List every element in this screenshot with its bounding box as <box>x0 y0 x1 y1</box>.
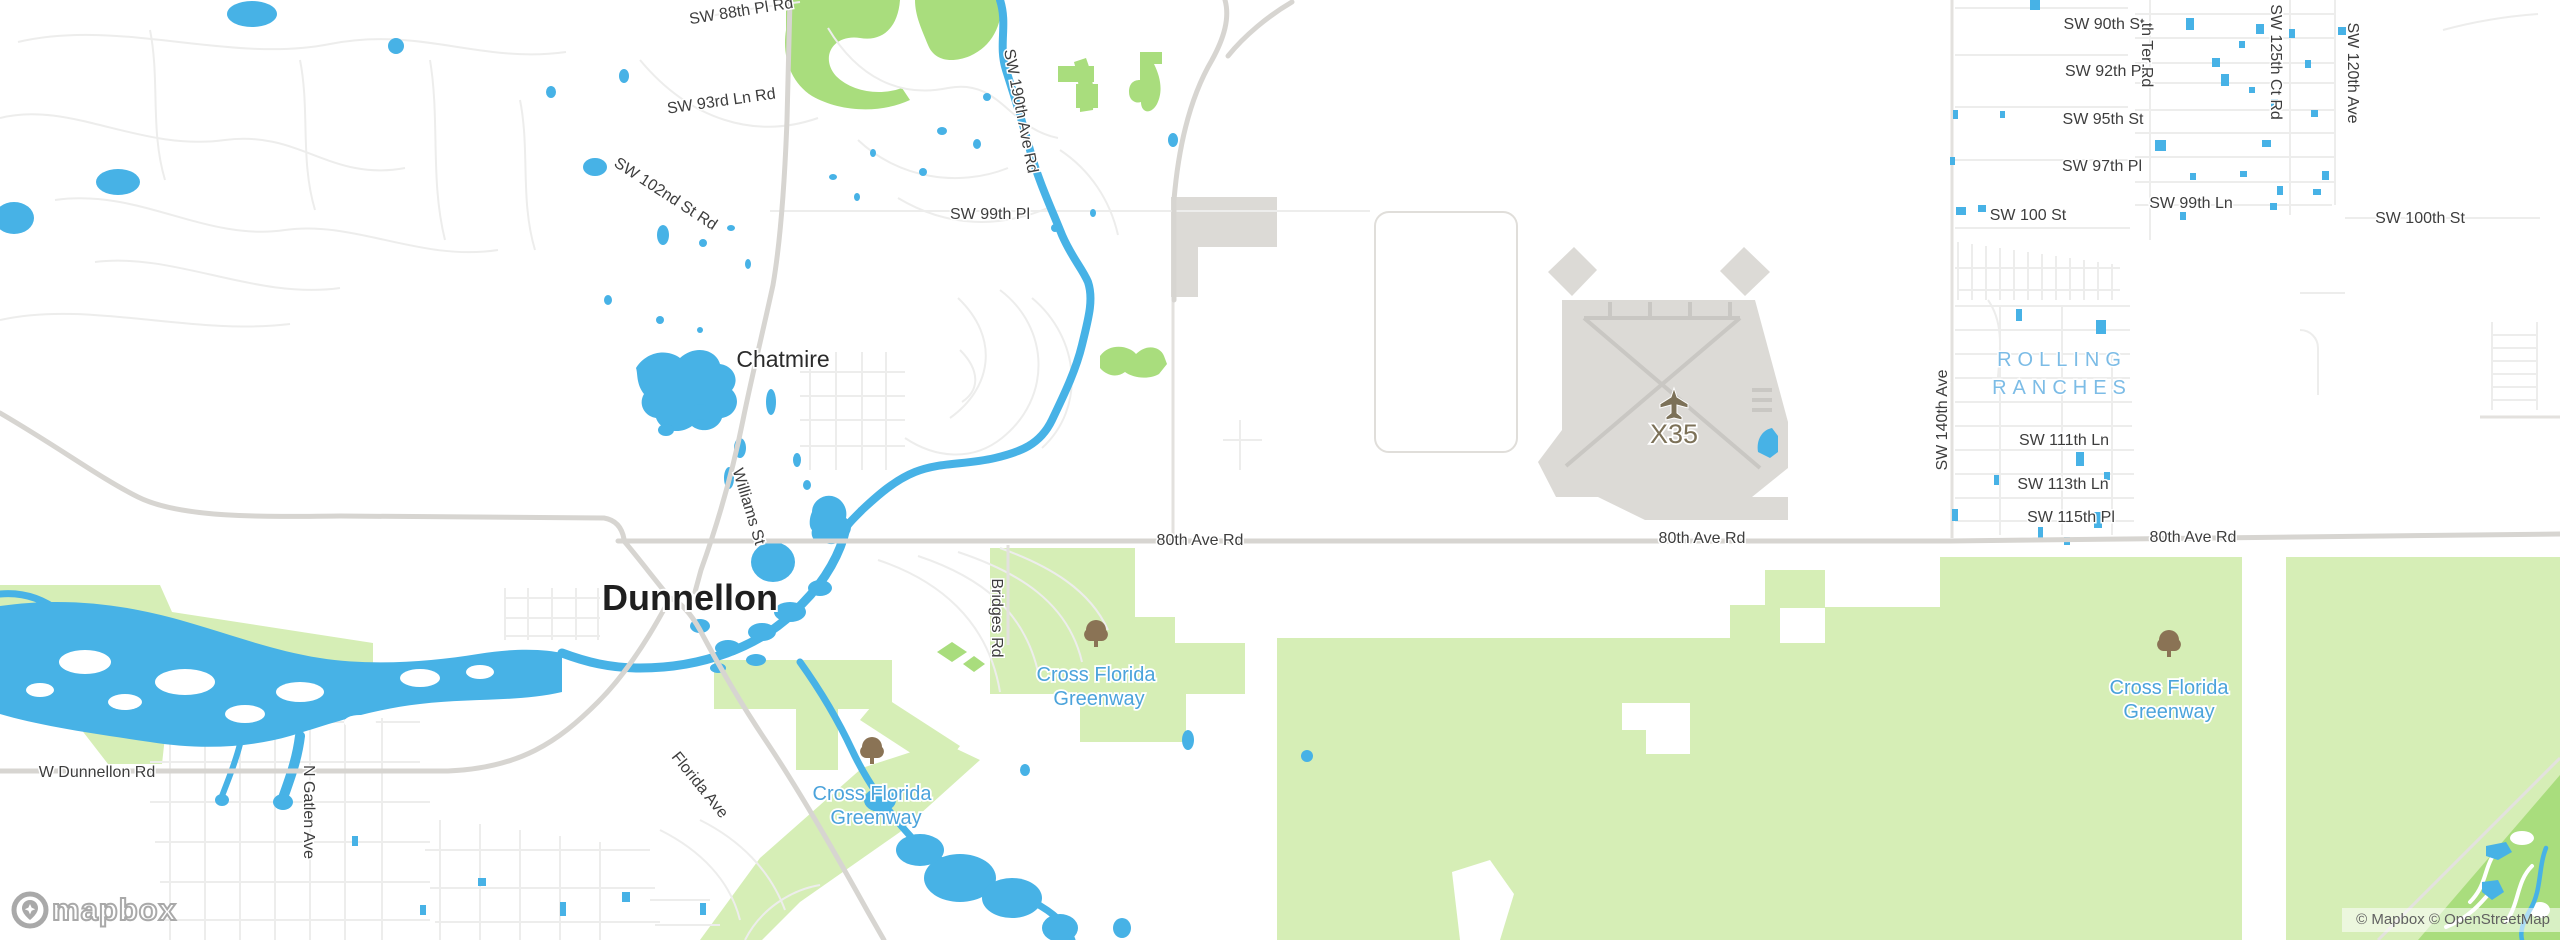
road-label-sw-100-st: SW 100 St <box>1990 207 2067 224</box>
greenway-label-east-line2: Greenway <box>2123 701 2214 723</box>
road-label-80th-ave-rd-mid: 80th Ave Rd <box>1659 530 1746 547</box>
road-label-sw-115th-pl: SW 115th Pl <box>2027 509 2115 526</box>
road-label-sw-100th-st: SW 100th St <box>2375 210 2465 227</box>
road-label-sw-92th-pl: SW 92th Pl <box>2065 63 2145 80</box>
road-label-sw-97th-pl: SW 97th Pl <box>2062 158 2142 175</box>
map-attribution[interactable]: © Mapbox © OpenStreetMap <box>2342 908 2560 932</box>
road-label-n-gatlen-ave: N Gatlen Ave <box>300 765 317 859</box>
map-canvas[interactable]: SW 88th Pl Rd SW 190th Ave Rd SW 93rd Ln… <box>0 0 2560 940</box>
road-label-sw-111th-ln: SW 111th Ln <box>2019 432 2109 449</box>
road-label-sw-113th-ln: SW 113th Ln <box>2017 476 2108 493</box>
place-label-dunnellon: Dunnellon <box>602 577 778 618</box>
greenway-label-west-line2: Greenway <box>830 807 921 829</box>
road-label-w-dunnellon-rd: W Dunnellon Rd <box>39 764 156 781</box>
road-label-sw-99th-ln: SW 99th Ln <box>2149 195 2233 212</box>
mapbox-logo-text: mapbox <box>52 892 177 928</box>
mapbox-logo[interactable]: mapbox <box>10 890 177 930</box>
road-label-sw-140th-ave: SW 140th Ave <box>1934 369 1951 470</box>
area-label-ranches: RANCHES <box>1992 377 2132 399</box>
airport-label-x35: X35 <box>1650 419 1698 449</box>
area-label-rolling: ROLLING <box>1997 349 2127 371</box>
greenway-label-mid-line1: Cross Florida <box>1037 664 1157 686</box>
road-label-sw-95th-st: SW 95th St <box>2063 111 2144 128</box>
road-label-80th-ave-rd-west: 80th Ave Rd <box>1157 532 1244 549</box>
road-label-th-ter-rd: th Ter Rd <box>2138 23 2155 88</box>
greenway-label-mid-line2: Greenway <box>1053 688 1144 710</box>
greenway-label-west-line1: Cross Florida <box>813 783 933 805</box>
greenway-label-east-line1: Cross Florida <box>2110 677 2230 699</box>
road-label-sw-120th-ave: SW 120th Ave <box>2344 22 2361 123</box>
road-label-sw-125th-ct-rd: SW 125th Ct Rd <box>2267 4 2284 120</box>
road-label-bridges-rd: Bridges Rd <box>988 578 1005 657</box>
road-label-sw-99th-pl: SW 99th Pl <box>950 206 1030 223</box>
mapbox-logo-icon <box>10 890 50 930</box>
road-label-80th-ave-rd-east: 80th Ave Rd <box>2150 529 2237 546</box>
place-label-chatmire: Chatmire <box>736 346 829 372</box>
road-label-sw-90th-st: SW 90th St <box>2064 16 2145 33</box>
